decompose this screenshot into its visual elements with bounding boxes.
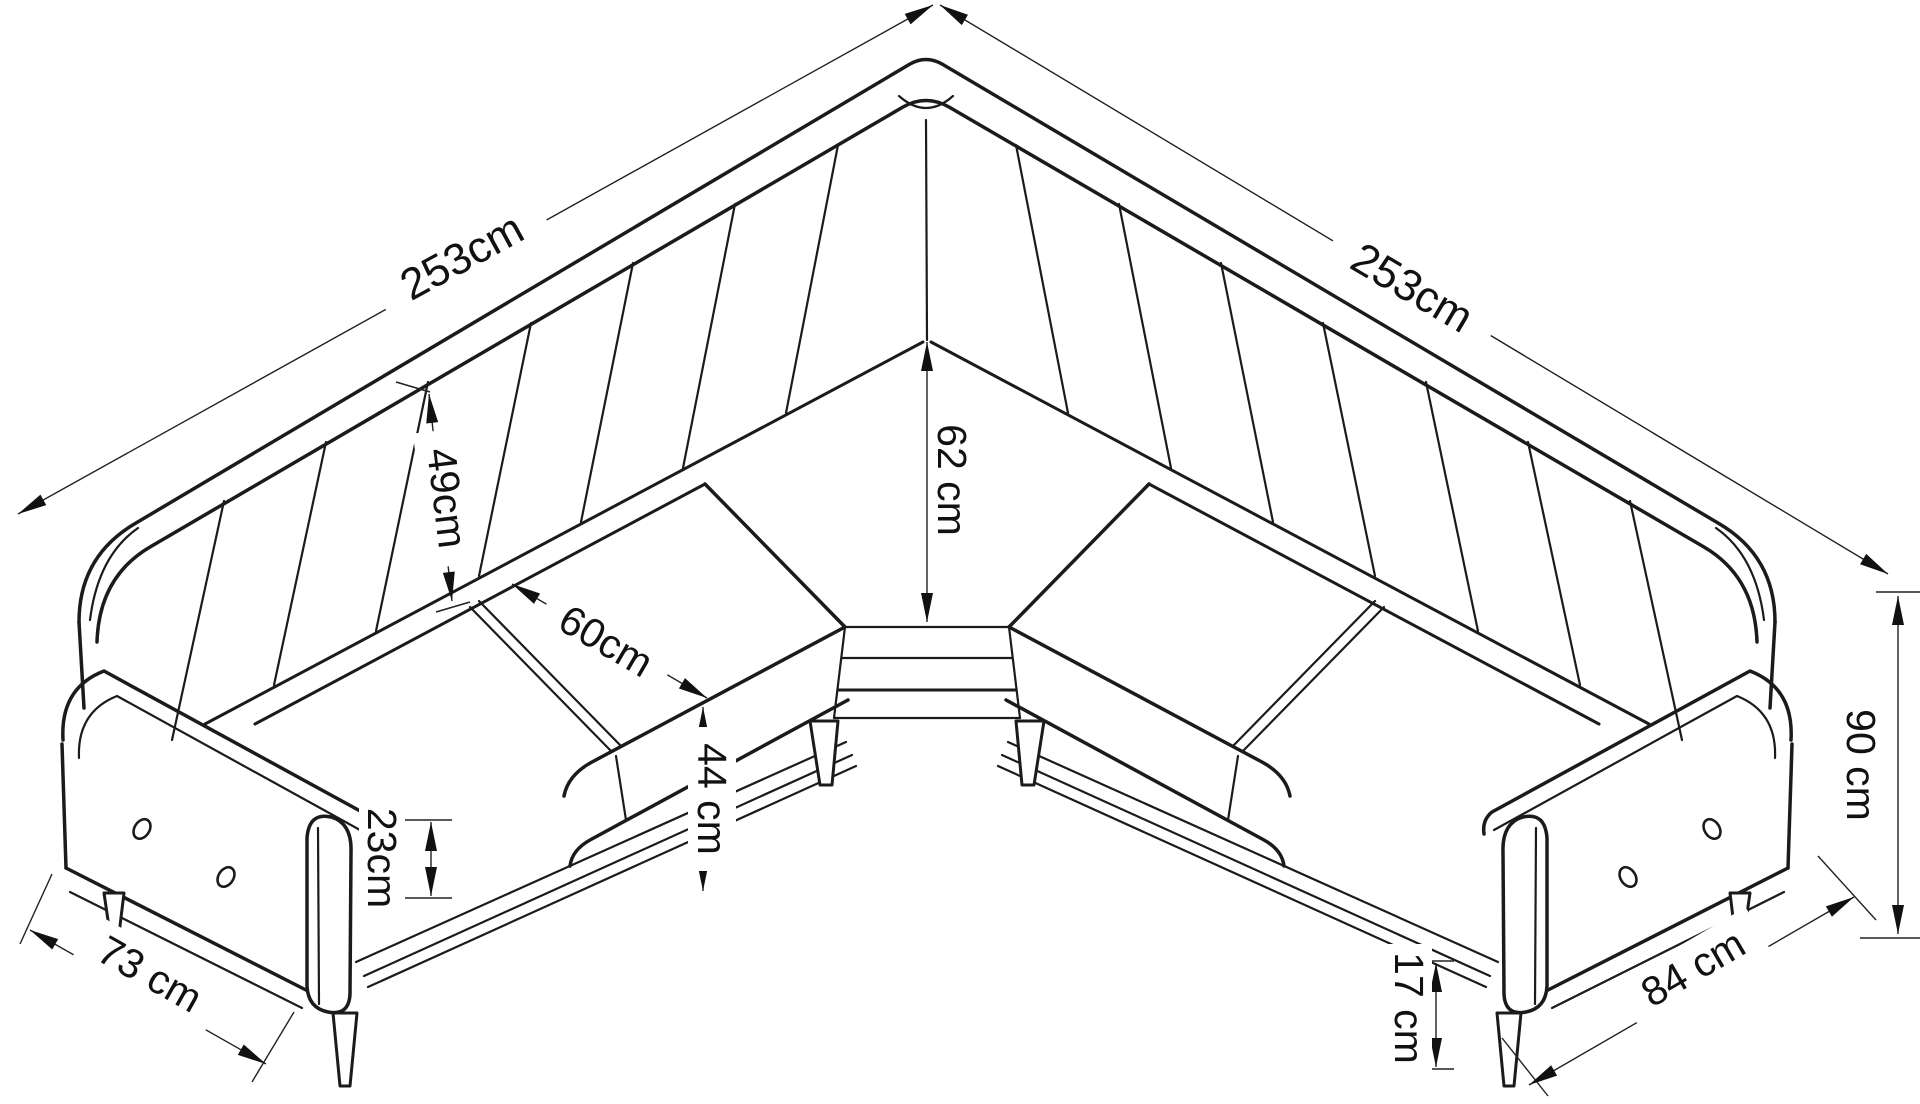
corner-seat-front	[834, 627, 1020, 718]
dim-label-17: 17 cm	[1386, 952, 1432, 1064]
dim-label-44: 44 cm	[689, 743, 735, 855]
dim-label-62: 62 cm	[929, 424, 975, 536]
corner-sofa-dimension-drawing: 253cm 253cm 49cm 60cm 62 cm	[0, 0, 1920, 1104]
dimension-leg-height: 17 cm	[1386, 944, 1454, 1072]
upholstery-button	[1700, 816, 1724, 842]
dimension-overall-height: 90 cm	[1838, 592, 1920, 938]
dim-label-84: 84 cm	[1633, 920, 1753, 1016]
dimension-right-side-length: 253cm	[940, 5, 1888, 574]
upholstery-button	[130, 816, 154, 842]
dim-label-253-left: 253cm	[392, 204, 531, 310]
cushion-divider-right	[1228, 601, 1384, 820]
upholstery-button	[214, 864, 238, 890]
dimension-arm-panel-height: 23cm	[359, 796, 452, 920]
dim-label-73: 73 cm	[90, 926, 210, 1021]
dimension-seat-height: 44 cm	[688, 707, 736, 891]
dim-label-60: 60cm	[551, 596, 661, 686]
upholstery-button	[1616, 864, 1640, 890]
dimension-right-arm-depth: 84 cm	[1502, 856, 1876, 1096]
dimension-left-arm-depth: 73 cm	[20, 874, 294, 1082]
technical-drawing-page: 253cm 253cm 49cm 60cm 62 cm	[0, 0, 1920, 1104]
dim-label-90: 90 cm	[1838, 709, 1884, 821]
dimension-left-side-length: 253cm	[18, 5, 933, 514]
sofa-base-rails	[356, 742, 1498, 987]
dim-label-23: 23cm	[359, 808, 405, 908]
dimension-corner-seat-depth: 62 cm	[927, 342, 975, 622]
dimension-backrest-height: 49cm	[396, 382, 481, 612]
